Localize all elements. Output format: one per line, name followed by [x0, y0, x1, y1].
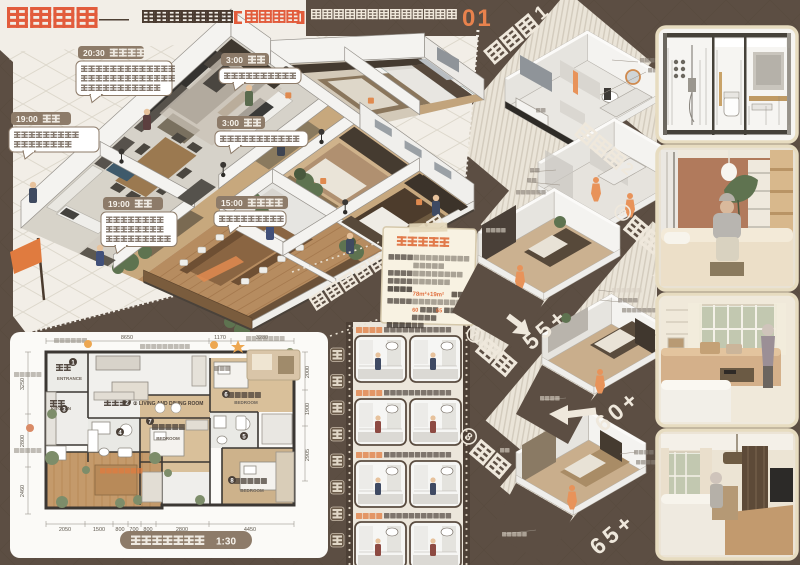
svg-text:60: 60	[412, 308, 418, 314]
svg-text:2800: 2800	[20, 435, 26, 447]
svg-text:01: 01	[462, 5, 493, 32]
svg-text:BEDROOM: BEDROOM	[240, 488, 264, 493]
svg-text:1500: 1500	[93, 527, 105, 533]
svg-text:2460: 2460	[20, 485, 26, 497]
svg-text:BEDROOM: BEDROOM	[234, 400, 258, 405]
svg-text:8650: 8650	[121, 335, 133, 341]
svg-text:1900: 1900	[305, 403, 311, 415]
svg-text:78m²+19m²: 78m²+19m²	[412, 291, 444, 299]
svg-text:2000: 2000	[305, 366, 311, 378]
svg-text:2050: 2050	[59, 527, 71, 533]
svg-text:BEDROOM: BEDROOM	[156, 436, 180, 441]
svg-text:1:30: 1:30	[216, 537, 236, 548]
svg-text:2905: 2905	[305, 449, 311, 461]
svg-text:15:00: 15:00	[221, 198, 243, 208]
svg-text:20:30: 20:30	[83, 48, 105, 58]
svg-text:——: ——	[99, 11, 129, 28]
svg-text:19:00: 19:00	[108, 199, 130, 209]
svg-text:65: 65	[436, 308, 442, 314]
svg-text:ENTRANCE: ENTRANCE	[57, 376, 82, 381]
svg-text:② LIVING AND DINING ROOM: ② LIVING AND DINING ROOM	[133, 401, 203, 407]
svg-text:800: 800	[115, 527, 124, 533]
svg-text:3:00: 3:00	[222, 118, 239, 128]
svg-text:3250: 3250	[20, 378, 26, 390]
svg-text:1170: 1170	[214, 335, 226, 341]
svg-text:19:00: 19:00	[16, 114, 38, 124]
svg-text:3:00: 3:00	[226, 55, 243, 65]
